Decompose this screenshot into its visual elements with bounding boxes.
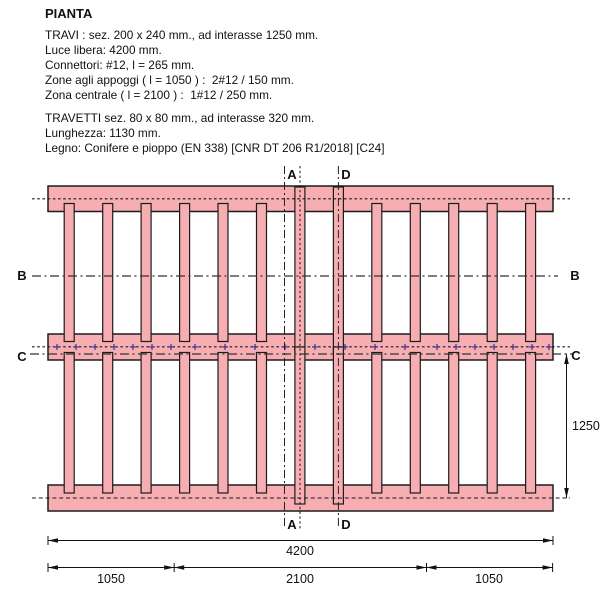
travetto [372, 353, 382, 494]
travetto [410, 353, 420, 494]
travetto [487, 204, 497, 342]
section-label-d-top: D [334, 167, 358, 182]
dimension-segments [48, 563, 553, 572]
dimension-label-left: 1050 [81, 572, 141, 586]
travetto-section-a [295, 187, 305, 353]
section-label-b-right: B [563, 268, 587, 283]
note-travetti-3: Legno: Conifere e pioppo (EN 338) [CNR D… [45, 141, 384, 155]
note-travi-4: Zone agli appoggi ( l = 1050 ) : 2#12 / … [45, 73, 294, 87]
plan-drawing-canvas: PIANTA TRAVI : sez. 200 x 240 mm., ad in… [0, 0, 605, 592]
section-label-c-left: C [10, 349, 34, 364]
section-label-c-right: C [564, 348, 588, 363]
travetto [103, 353, 113, 494]
note-travi-1: TRAVI : sez. 200 x 240 mm., ad interasse… [45, 28, 318, 42]
travetto [410, 204, 420, 342]
section-label-d-bottom: D [334, 517, 358, 532]
section-label-a-top: A [280, 167, 304, 182]
travetto [526, 204, 536, 342]
travetto [218, 353, 228, 494]
travetto [180, 204, 190, 342]
travetto [526, 353, 536, 494]
dimension-label-total: 4200 [270, 544, 330, 558]
travetto [141, 353, 151, 494]
travetto [64, 204, 74, 342]
travetto [64, 353, 74, 494]
travetto [487, 353, 497, 494]
travetto [372, 204, 382, 342]
travetto [103, 204, 113, 342]
travetto [180, 353, 190, 494]
travetto [257, 204, 267, 342]
travetto [449, 204, 459, 342]
dimension-label-spacing: 1250 [572, 419, 605, 433]
note-travetti-1: TRAVETTI sez. 80 x 80 mm., ad interasse … [45, 111, 314, 125]
note-travetti-2: Lunghezza: 1130 mm. [45, 126, 161, 140]
page-title: PIANTA [45, 6, 92, 21]
note-travi-5: Zona centrale ( l = 2100 ) : 1#12 / 250 … [45, 88, 272, 102]
travetto [449, 353, 459, 494]
travetto [218, 204, 228, 342]
dimension-beam-spacing [564, 354, 569, 498]
section-label-b-left: B [10, 268, 34, 283]
dimension-label-right: 1050 [459, 572, 519, 586]
dimension-label-center: 2100 [270, 572, 330, 586]
travetto [257, 353, 267, 494]
travetto [141, 204, 151, 342]
section-label-a-bottom: A [280, 517, 304, 532]
note-travi-2: Luce libera: 4200 mm. [45, 43, 162, 57]
note-travi-3: Connettori: #12, l = 265 mm. [45, 58, 194, 72]
